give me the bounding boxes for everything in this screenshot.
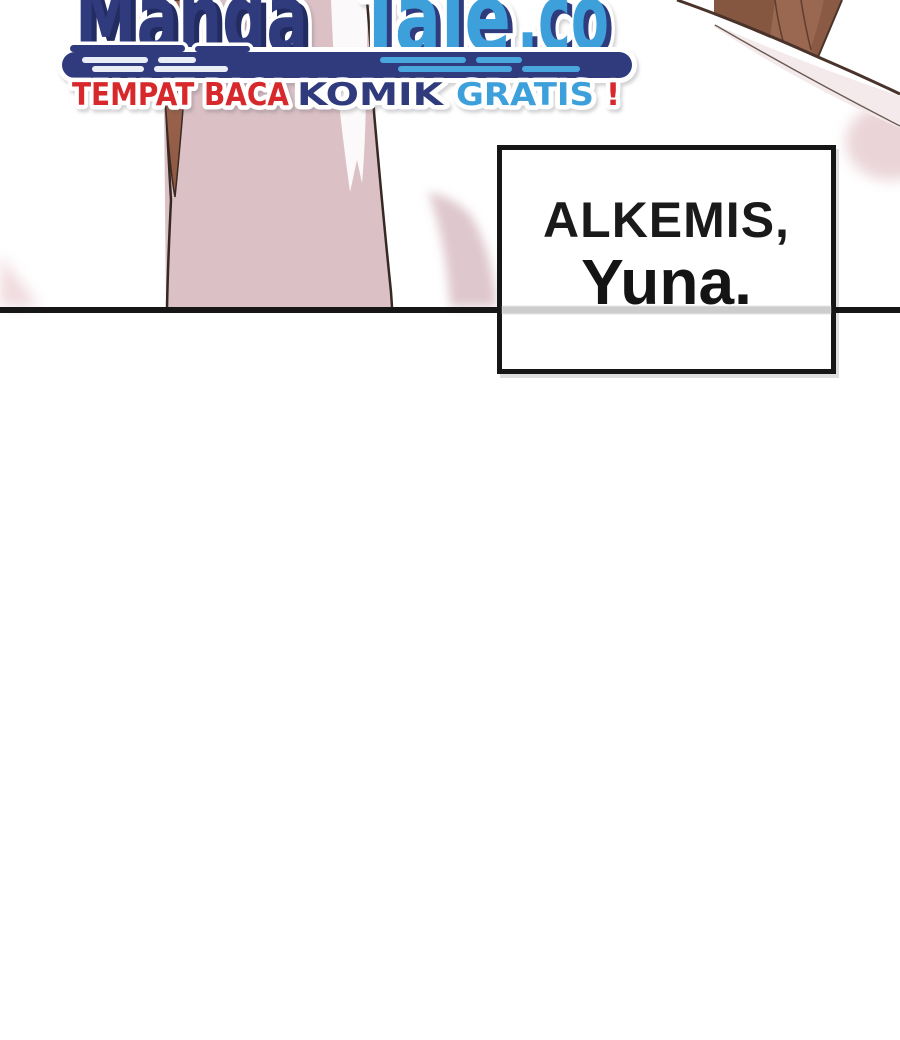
- soft-blob-left-corner: [0, 255, 40, 307]
- soft-blob-center: [428, 192, 497, 307]
- speech-line-1: ALKEMIS,: [502, 194, 831, 246]
- speech-bubble: ALKEMIS, Yuna.: [497, 145, 836, 374]
- speech-line-2: Yuna.: [502, 250, 831, 314]
- comic-page: ALKEMIS, Yuna. Manga Manga Tale Tale .co…: [0, 0, 900, 1040]
